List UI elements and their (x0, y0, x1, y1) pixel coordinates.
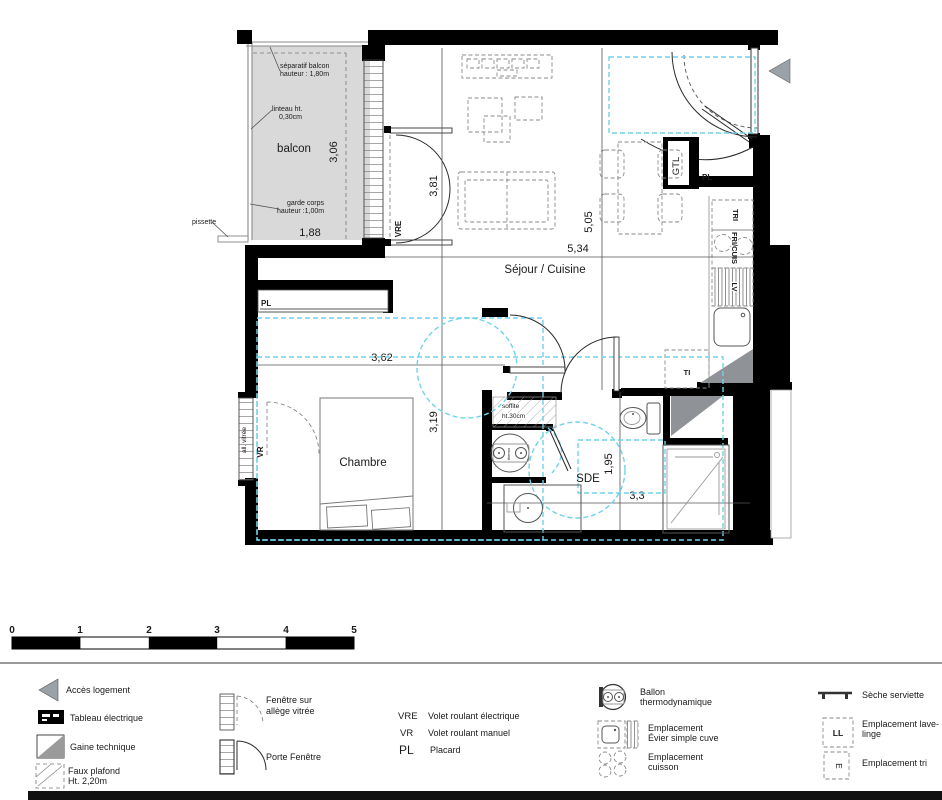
access-arrow-icon (769, 59, 790, 83)
legend-tableau-icon (38, 710, 64, 724)
legend-ll-abbr: LL (833, 728, 843, 738)
scale-tick-0: 0 (9, 625, 15, 636)
sejour-furniture (458, 55, 682, 234)
scale-tick-5: 5 (351, 625, 357, 636)
dim-sejour-height: 5,05 (583, 211, 595, 232)
legend-pl-abbr: PL (399, 743, 414, 757)
annotation-linteau-line1: linteau ht. (272, 106, 302, 113)
legend-porte-fenetre-label: Porte Fenêtre (266, 752, 321, 762)
room-label-sde: SDE (576, 473, 600, 485)
legend-vr-label: Volet roulant manuel (428, 728, 510, 738)
legend-faux-plafond-label2: Ht. 2,20m (68, 776, 107, 786)
label-vr-window: VR (256, 446, 265, 457)
legend-gaine-label: Gaine technique (70, 742, 136, 752)
scale-tick-1: 1 (77, 625, 83, 636)
legend-cuisson-label2: cuisson (648, 762, 679, 772)
scale-tick-3: 3 (214, 625, 220, 636)
scale-tick-2: 2 (146, 625, 152, 636)
dim-chambre-height: 3,19 (428, 411, 440, 432)
label-pl-chambre: PL (261, 299, 271, 308)
floor-plan-svg: séparatif balcon hauteur : 1,80m linteau… (0, 0, 942, 800)
legend-fenetre-label2: allège vitrée (266, 706, 315, 716)
legend-evier-label2: Évier simple cuve (648, 733, 719, 743)
annotation-soffite-line2: ht.30cm (502, 413, 525, 420)
annotation-garde-corps-line1: garde corps (287, 200, 324, 207)
sejour-french-window (364, 60, 452, 246)
room-label-balcon: balcon (277, 143, 311, 155)
shower-gaine-triangle (671, 396, 723, 436)
adjacent-unit-outline (771, 390, 791, 538)
label-lv: LV (730, 282, 739, 291)
annotation-linteau-line2: 0,30cm (279, 114, 302, 121)
label-thermo: thermo (506, 447, 511, 460)
annotation-soffite-line1: soffite (502, 403, 520, 410)
legend-faux-plafond-label1: Faux plafond (68, 766, 120, 776)
label-vre-window: VRE (394, 220, 403, 237)
legend-seche-label: Sèche serviette (862, 690, 924, 700)
pissette-symbol (218, 236, 248, 242)
legend-tableau-label: Tableau électrique (70, 713, 143, 723)
legend-vre-label: Volet roulant électrique (428, 711, 520, 721)
legend-col1 (36, 679, 64, 788)
dim-balcon-width: 1,88 (299, 227, 320, 239)
legend-porte-fenetre-icon (220, 740, 234, 774)
legend-pl-label: Placard (430, 745, 461, 755)
legend-tri-label: Emplacement tri (862, 758, 927, 768)
label-allege-vitree: all. vitrée (241, 427, 248, 453)
label-gtl: GTL (671, 157, 682, 175)
room-label-chambre: Chambre (339, 457, 386, 469)
legend-cuisson-icon (599, 752, 611, 764)
label-tri: TRI (731, 209, 740, 221)
legend-access-arrow-icon (39, 679, 58, 701)
legend-access-label: Accès logement (66, 685, 131, 695)
dim-sde-height: 1,95 (603, 453, 615, 474)
dim-balcon-depth: 3,06 (328, 141, 340, 162)
legend-ballon-label1: Ballon (640, 687, 665, 697)
legend-evier-label1: Emplacement (648, 723, 704, 733)
entry-door (641, 48, 758, 160)
room-label-sejour: Séjour / Cuisine (504, 264, 585, 276)
kitchen-gaine-triangle (700, 349, 753, 383)
legend-fenetre-icon (220, 694, 234, 730)
legend-tri-glyph: E (834, 763, 844, 769)
scale-tick-4: 4 (283, 625, 289, 636)
annotation-separatif-line2: hauteur : 1,80m (280, 71, 329, 78)
dim-chambre-width: 3,62 (371, 352, 392, 364)
legend-lave-linge-label2: linge (862, 729, 881, 739)
legend-vr-abbr: VR (400, 728, 413, 739)
legend-cuisson-label1: Emplacement (648, 752, 704, 762)
dim-sejour-width: 5,34 (567, 243, 588, 255)
annotation-garde-corps-line2: hauteur :1,00m (277, 208, 324, 215)
dim-sde-width: 3,3 (629, 490, 644, 502)
legend-col2 (220, 694, 266, 774)
legend-col4 (598, 685, 638, 778)
floor-plan-page: séparatif balcon hauteur : 1,80m linteau… (0, 0, 942, 800)
chambre (238, 290, 413, 530)
bottom-border-bar (28, 791, 942, 800)
legend-ballon-label2: thermodynamique (640, 697, 712, 707)
annotation-pissette: pissette (192, 219, 216, 226)
label-fri-cuis: FRI/CUIS (730, 232, 739, 264)
legend-fenetre-label1: Fenêtre sur (266, 695, 312, 705)
label-ti: TI (684, 368, 691, 377)
legend-vre-abbr: VRE (398, 711, 418, 722)
legend-lave-linge-label1: Emplacement lave- (862, 719, 939, 729)
dim-baie: 3,81 (428, 175, 440, 196)
label-pl-entree: PL (702, 173, 712, 182)
annotation-separatif-line1: séparatif balcon (280, 63, 330, 70)
scale-bar (12, 637, 354, 649)
